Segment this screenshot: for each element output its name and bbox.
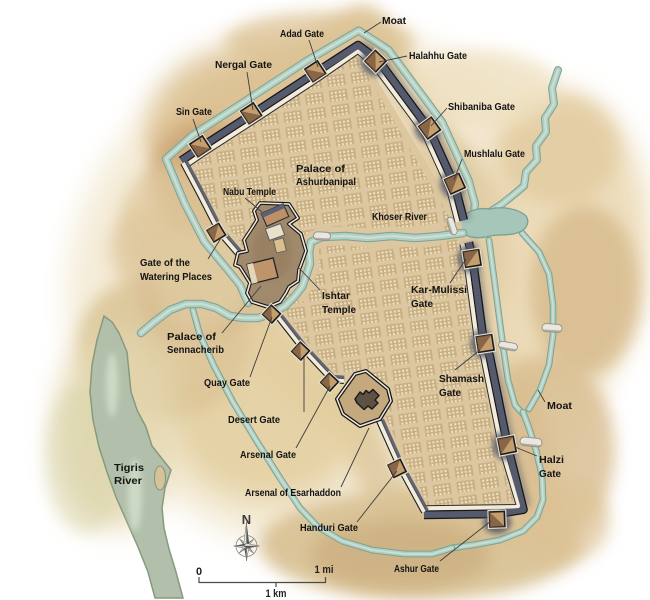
svg-text:Handuri Gate: Handuri Gate <box>300 522 358 534</box>
svg-text:Tigris: Tigris <box>114 462 144 474</box>
svg-text:Nergal Gate: Nergal Gate <box>215 59 272 71</box>
svg-text:Sennacherib: Sennacherib <box>167 344 224 356</box>
svg-text:Gate of the: Gate of the <box>140 257 190 269</box>
svg-text:Halahhu Gate: Halahhu Gate <box>409 50 467 62</box>
svg-text:Temple: Temple <box>322 304 356 316</box>
svg-text:Kar-Mulissi: Kar-Mulissi <box>411 284 467 296</box>
svg-text:Nabu Temple: Nabu Temple <box>223 186 276 198</box>
svg-text:Ashurbanipal: Ashurbanipal <box>296 176 356 188</box>
svg-text:0: 0 <box>196 566 202 578</box>
svg-text:Watering Places: Watering Places <box>140 271 212 283</box>
svg-text:Moat: Moat <box>547 400 573 412</box>
svg-text:Palace of: Palace of <box>167 331 217 343</box>
svg-text:Arsenal of Esarhaddon: Arsenal of Esarhaddon <box>245 487 341 499</box>
svg-text:Desert Gate: Desert Gate <box>228 414 280 426</box>
svg-text:River: River <box>114 475 142 487</box>
svg-text:1 km: 1 km <box>266 588 287 600</box>
svg-text:Shibaniba Gate: Shibaniba Gate <box>448 101 515 113</box>
svg-text:Gate: Gate <box>439 387 461 399</box>
svg-text:Gate: Gate <box>411 298 433 310</box>
svg-text:Adad Gate: Adad Gate <box>280 28 324 40</box>
svg-text:Khoser River: Khoser River <box>372 211 427 223</box>
svg-text:Palace of: Palace of <box>296 163 346 175</box>
svg-text:Sin Gate: Sin Gate <box>176 106 212 118</box>
svg-text:Halzi: Halzi <box>539 454 564 466</box>
svg-text:N: N <box>242 512 251 527</box>
svg-text:Quay Gate: Quay Gate <box>204 377 250 389</box>
svg-text:Ashur Gate: Ashur Gate <box>394 563 439 575</box>
svg-text:Arsenal Gate: Arsenal Gate <box>240 449 296 461</box>
svg-text:Gate: Gate <box>539 468 561 480</box>
svg-text:1 mi: 1 mi <box>315 564 334 576</box>
svg-text:Mushlalu Gate: Mushlalu Gate <box>464 148 525 160</box>
svg-text:Moat: Moat <box>382 15 406 27</box>
svg-text:Ishtar: Ishtar <box>322 290 350 302</box>
svg-text:Shamash: Shamash <box>439 373 484 385</box>
